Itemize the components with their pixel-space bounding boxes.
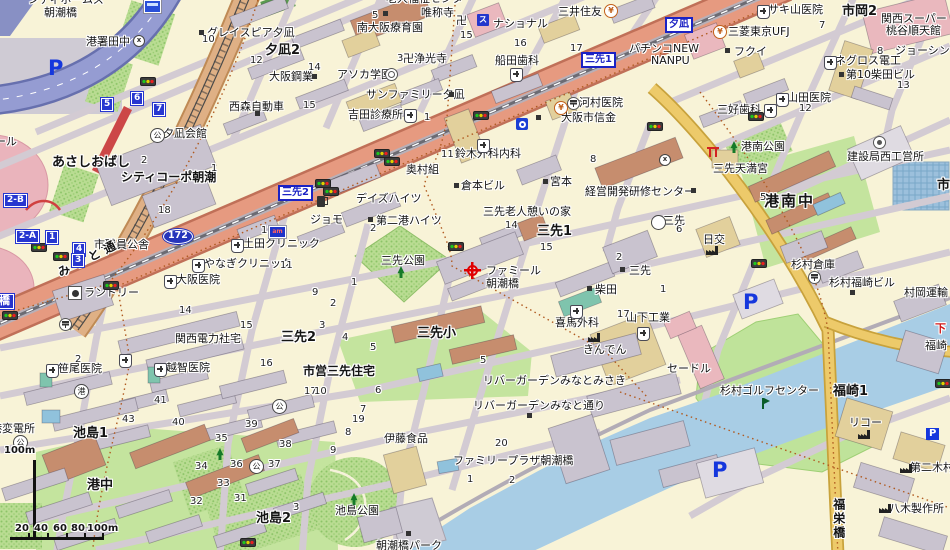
blk-icon [620, 267, 625, 272]
map-label: 老人福祉センター [386, 0, 474, 6]
map-label: 関西電力社宅 [175, 333, 241, 346]
hospital-icon [231, 239, 244, 253]
exit-number-badge: 7 [153, 103, 165, 116]
hospital-icon [404, 109, 417, 123]
map-label: 三先 [629, 265, 651, 278]
blk-icon [199, 30, 204, 35]
parking-icon: P [743, 290, 758, 314]
scale-label: 100m [4, 445, 35, 457]
traffic-light-icon [103, 281, 119, 290]
super-icon: ス [477, 14, 489, 26]
block-number: 5 [372, 10, 378, 22]
torii-icon [707, 147, 719, 157]
map-label: 奥村組 [406, 164, 439, 177]
block-number: 16 [260, 358, 273, 370]
dest-icon [464, 262, 481, 279]
circle-glyph-icon: 公 [150, 128, 165, 143]
map-label: 池島公園 [335, 505, 379, 518]
laundry-icon [68, 286, 82, 300]
block-number: 20 [495, 438, 508, 450]
block-number: 1 [467, 474, 473, 486]
block-number: 38 [279, 439, 292, 451]
blk-icon [449, 92, 454, 97]
hospital-icon [824, 56, 837, 70]
block-number: 43 [122, 414, 135, 426]
map-label: 柴田 [595, 284, 617, 297]
block-number: 10 [314, 386, 327, 398]
block-number: 40 [172, 417, 185, 429]
station-sign: 朝潮橋 [0, 294, 14, 309]
traffic-light-icon [748, 112, 764, 121]
gov-icon [873, 136, 886, 149]
map-label: 経営開発研修センター [585, 186, 695, 199]
circle-glyph-icon: 公 [272, 399, 287, 414]
traffic-light-icon [240, 538, 256, 547]
hospital-icon [164, 275, 177, 289]
block-number: 1 [424, 112, 430, 124]
map-label: 日交 [703, 234, 725, 247]
block-number: 12 [250, 55, 263, 67]
block-number: 1 [211, 163, 217, 175]
blk-icon [383, 11, 388, 16]
traffic-light-icon [448, 242, 464, 251]
map-label: 卍 [456, 15, 467, 28]
block-number: 41 [154, 395, 167, 407]
district-label: 三先小 [417, 327, 456, 342]
block-number: 9 [330, 445, 336, 457]
exit-number-badge: 2-A [16, 230, 39, 243]
map-label: 三井住友 [558, 6, 602, 19]
place-label: シティコーポ朝潮 [121, 171, 216, 185]
map-label: 夕凪会館 [163, 128, 207, 141]
block-number: 15 [240, 320, 253, 332]
hospital-icon [46, 364, 59, 378]
parking-icon: P [926, 428, 939, 440]
district-label: あさしおばし [52, 156, 130, 171]
map-label: 大阪鋼業 [269, 71, 313, 84]
district-label: 池島1 [73, 427, 108, 442]
block-number: 34 [195, 461, 208, 473]
district-label: 港南中 [764, 193, 815, 210]
blk-icon [850, 290, 855, 295]
traffic-light-icon [2, 311, 18, 320]
block-number: 35 [215, 433, 228, 445]
exit-number-badge: 1 [46, 231, 58, 244]
map-label: グレイスピア夕凪 [207, 27, 295, 40]
bank-icon [713, 25, 727, 39]
bridge-name: 福栄橋 [831, 498, 845, 540]
map-label: 宮本 [550, 176, 572, 189]
map-label: 土田クリニック [243, 238, 320, 251]
ampm-icon: am [269, 226, 286, 238]
post-icon [567, 97, 580, 110]
traffic-light-icon [384, 157, 400, 166]
block-number: 2 [141, 155, 147, 167]
map-label: 港署田中 [86, 36, 130, 49]
traffic-light-icon [473, 111, 489, 120]
block-number: 13 [897, 80, 910, 92]
map-label: リバーガーデンみなと通り [473, 400, 605, 413]
map-label: ファミール [486, 265, 541, 278]
map-label: 八木製作所 [889, 503, 944, 516]
map-label: 吉田診療所 [348, 109, 403, 122]
block-number: 2 [616, 252, 622, 264]
post-icon [59, 318, 72, 331]
map-label: 山下工業 [626, 312, 670, 325]
route-shield: 172 [163, 229, 193, 244]
map-label: 三先天満宮 [713, 163, 768, 176]
police-icon [659, 154, 671, 166]
blk-icon [255, 111, 260, 116]
flag-icon [759, 398, 769, 409]
hospital-icon [764, 104, 777, 118]
blk-icon [725, 48, 730, 53]
map-label: セードル [667, 363, 711, 376]
traffic-light-icon [53, 252, 69, 261]
road-sign: 三先1 [581, 52, 616, 68]
map-label: サキ山医院 [768, 4, 823, 17]
exit-number-badge: 5 [101, 98, 113, 111]
map-label: デイズハイツ [356, 193, 421, 206]
scale-bar-horizontal [10, 537, 104, 540]
map-label: 第二港ハイツ [376, 215, 442, 228]
district-label: 福崎1 [833, 385, 868, 400]
block-number: 37 [268, 459, 281, 471]
block-number: 32 [190, 496, 203, 508]
hospital-icon [510, 68, 523, 82]
traffic-light-icon [751, 259, 767, 268]
scale-label: 20 [15, 523, 29, 535]
map-label: NANPU [651, 55, 690, 68]
road-sign: 三先2 [278, 185, 313, 201]
exit-number-badge: 3 [72, 254, 84, 267]
block-number: 2 [75, 354, 81, 366]
map-label: ナショナル [493, 18, 548, 31]
block-number: 5 [480, 355, 486, 367]
block-number: 15 [540, 242, 553, 254]
traffic-light-icon [31, 243, 47, 252]
block-number: 16 [514, 38, 527, 50]
block-number: 1 [351, 277, 357, 289]
block-number: 6 [676, 224, 682, 236]
blk-icon [536, 115, 541, 120]
hospital-icon [119, 354, 132, 368]
block-number: 31 [234, 493, 247, 505]
block-number: 1 [660, 284, 666, 296]
traffic-light-icon [323, 187, 339, 196]
bus-icon [144, 0, 161, 13]
post-icon [808, 271, 821, 284]
map-label: 伊藤食品 [384, 433, 428, 446]
map-label: 河村医院 [579, 97, 623, 110]
map-label: ファミリープラザ朝潮橋 [453, 455, 573, 468]
place-label: 市営三先住宅 [303, 365, 375, 379]
block-number: 3 [293, 502, 299, 514]
map-label: 下 [935, 323, 946, 336]
road-sign: 夕凪 [665, 17, 693, 33]
block-number: 5 [370, 342, 376, 354]
map-label: 朝潮橋パーク [376, 540, 442, 550]
map-label: 船田歯科 [495, 55, 539, 68]
block-number: 14 [308, 62, 321, 74]
block-number: 18 [158, 205, 171, 217]
exit-number-badge: 2-B [4, 194, 27, 207]
blk-icon [527, 413, 532, 418]
map-label: 大阪市信金 [561, 112, 616, 125]
map-label: 卍浄光寺 [403, 53, 447, 66]
hospital-icon [757, 5, 770, 19]
map-label: 倉本ビル [461, 180, 505, 193]
hospital-icon [776, 93, 789, 107]
map-label: 港変電所 [0, 423, 35, 436]
map-label: 三先公園 [381, 255, 425, 268]
block-number: 15 [303, 100, 316, 112]
blk-icon [543, 179, 548, 184]
district-label: 夕凪2 [265, 44, 300, 59]
scale-label: 60 [53, 523, 67, 535]
district-label: 三先2 [281, 331, 316, 346]
block-number: 10 [202, 34, 215, 46]
block-number: 2 [509, 475, 515, 487]
traffic-light-icon [140, 77, 156, 86]
block-number: 8 [345, 427, 351, 439]
metro-icon [516, 118, 528, 130]
district-label: 三先1 [537, 225, 572, 240]
map-label: 第二木村ビル [910, 462, 950, 475]
block-number: 11 [280, 260, 293, 272]
map-canvas[interactable]: シティホームズ朝潮橋港署田中グレイスピア夕凪夕凪2大阪鋼業西森自動車夕凪会館あさ… [0, 0, 950, 550]
map-label: リコー [849, 417, 882, 430]
map-label: ジョーシン [895, 45, 950, 58]
circle-glyph-icon [651, 215, 666, 230]
block-number: 4 [342, 332, 348, 344]
block-number: 8 [590, 154, 596, 166]
circle-glyph-icon: 港 [74, 384, 89, 399]
map-label: 杉村ゴルフセンター [720, 385, 819, 398]
traffic-light-icon [647, 122, 663, 131]
map-label: リバーガーデンみなとみさき [483, 375, 626, 388]
blk-icon [454, 183, 459, 188]
block-number: 2 [330, 298, 336, 310]
block-number: 39 [245, 419, 258, 431]
map-label: 大阪医院 [176, 274, 220, 287]
parking-icon: P [712, 458, 727, 482]
map-label: 朝潮橋 [486, 278, 519, 291]
parking-icon: P [48, 56, 63, 80]
blk-icon [839, 72, 844, 77]
blk-icon [691, 188, 696, 193]
map-label: 朝潮橋 [44, 7, 77, 20]
circle-glyph-icon: 公 [249, 459, 264, 474]
block-number: 33 [217, 478, 230, 490]
block-number: 5 [760, 192, 766, 204]
block-number: 3 [397, 53, 403, 65]
map-label: 建設局西工営所 [847, 151, 924, 164]
map-label: 村岡運輸 [904, 287, 948, 300]
map-label: 南大阪療育園 [357, 22, 423, 35]
blk-icon [368, 217, 373, 222]
block-number: 12 [799, 103, 812, 115]
block-number: 17 [617, 309, 630, 321]
bank-icon [554, 101, 568, 115]
scale-label: 40 [34, 523, 48, 535]
block-number: 3 [319, 320, 325, 332]
map-label: ール [0, 136, 17, 149]
district-label: 池島2 [256, 512, 291, 527]
map-label: フクイ [734, 46, 767, 59]
map-label: 港南公園 [741, 141, 785, 154]
gas-icon [317, 196, 325, 207]
district-label: 港中 [87, 479, 113, 494]
district-label: 市岡2 [842, 5, 877, 20]
block-number: 7 [819, 20, 825, 32]
map-label: ネグロス電工 [835, 55, 901, 68]
map-label: アソカ学園 [337, 69, 392, 82]
hospital-icon [477, 139, 490, 153]
exit-number-badge: 6 [131, 92, 143, 105]
block-number: 8 [877, 46, 883, 58]
block-number: 6 [375, 385, 381, 397]
block-number: 19 [352, 414, 365, 426]
map-label: きんでん [583, 344, 626, 357]
block-number: 11 [441, 149, 454, 161]
map-label: 三先老人憩いの家 [483, 206, 571, 219]
scale-label: 100m [87, 523, 118, 535]
block-number: 14 [505, 220, 518, 232]
blk-icon [587, 286, 592, 291]
block-number: 14 [179, 305, 192, 317]
hospital-icon [154, 363, 167, 377]
wheel-icon [385, 68, 398, 81]
map-label: 唯称寺 [421, 7, 454, 20]
block-number: 2 [370, 223, 376, 235]
hospital-icon [637, 327, 650, 341]
bank-icon [604, 4, 618, 18]
block-number: 36 [230, 459, 243, 471]
map-label: 福崎 [925, 340, 947, 353]
map-label: 杉村倉庫 [791, 259, 835, 272]
map-label: ジョモ [310, 214, 343, 227]
map-label: 杉村福崎ビル [829, 277, 895, 290]
map-label: やなぎクリニック [204, 258, 292, 271]
scale-label: 80 [71, 523, 85, 535]
district-label: 市岡 [937, 179, 950, 194]
map-label: 桃谷順天館 [886, 25, 941, 38]
map-label: 越智医院 [166, 362, 210, 375]
blk-icon [406, 531, 411, 536]
hospital-icon [570, 305, 583, 319]
map-label: 三菱東京UFJ [728, 26, 790, 39]
police-icon [133, 35, 145, 47]
blk-icon [312, 74, 317, 79]
block-number: 9 [312, 287, 318, 299]
hospital-icon [192, 259, 205, 273]
traffic-light-icon [935, 379, 950, 388]
block-number: 15 [460, 30, 473, 42]
